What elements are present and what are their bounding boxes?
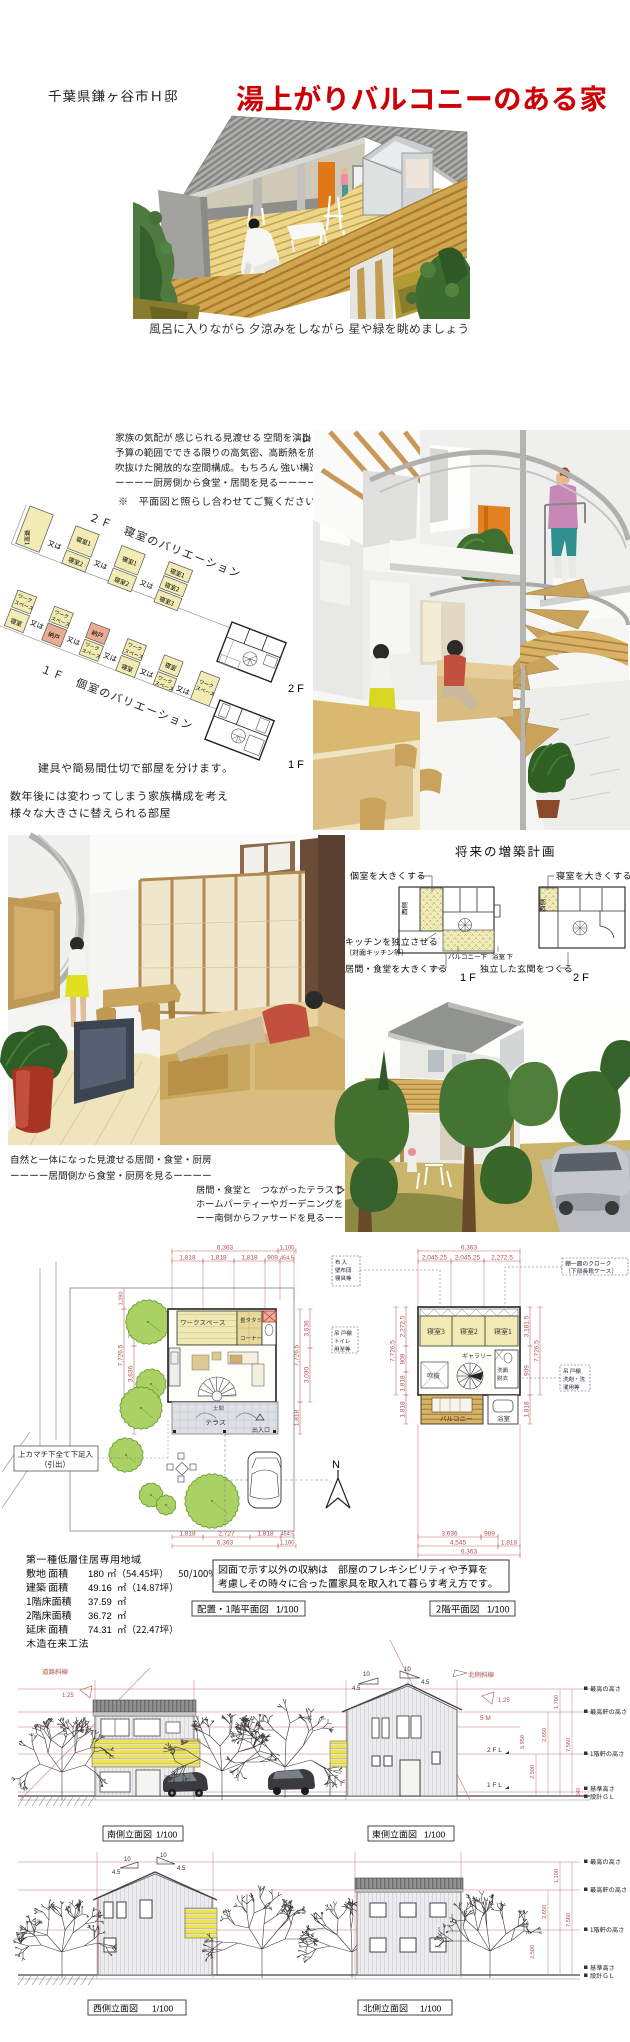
svg-text:1 F: 1 F xyxy=(288,759,304,771)
svg-text:1,818: 1,818 xyxy=(179,1255,196,1262)
svg-text:6,363: 6,363 xyxy=(461,1549,478,1556)
svg-text:49.16: 49.16 xyxy=(88,1583,112,1594)
svg-text:10: 10 xyxy=(363,1672,370,1678)
svg-text:10: 10 xyxy=(160,1853,167,1859)
svg-text:6,363: 6,363 xyxy=(461,1245,478,1252)
svg-text:454.5: 454.5 xyxy=(280,1256,294,1262)
svg-text:6,363: 6,363 xyxy=(217,1540,234,1547)
svg-text:37.59: 37.59 xyxy=(88,1597,112,1608)
svg-text:2,500: 2,500 xyxy=(530,1945,536,1959)
svg-text:2 F L: 2 F L xyxy=(487,1747,502,1754)
svg-text:36.72: 36.72 xyxy=(88,1611,112,1622)
svg-text:540: 540 xyxy=(576,1788,582,1797)
svg-text:1,100: 1,100 xyxy=(279,1541,295,1547)
svg-text:2,650: 2,650 xyxy=(542,1905,548,1919)
svg-text:1.25: 1.25 xyxy=(62,1693,74,1699)
svg-text:2,727: 2,727 xyxy=(218,1531,235,1538)
svg-text:1/100: 1/100 xyxy=(276,1605,299,1615)
svg-text:2,045.25: 2,045.25 xyxy=(422,1255,448,1262)
svg-text:1 F: 1 F xyxy=(460,972,476,984)
svg-text:74.31: 74.31 xyxy=(88,1625,112,1636)
svg-text:7,726.5: 7,726.5 xyxy=(390,1340,397,1362)
svg-text:1,818: 1,818 xyxy=(294,1409,301,1426)
svg-text:1/100: 1/100 xyxy=(156,1830,178,1840)
svg-text:5,950: 5,950 xyxy=(520,1735,526,1749)
svg-text:180: 180 xyxy=(88,1569,104,1580)
svg-text:4.5: 4.5 xyxy=(352,1686,361,1692)
svg-text:10: 10 xyxy=(404,1667,411,1673)
svg-text:1,818: 1,818 xyxy=(179,1531,196,1538)
svg-text:7,726.5: 7,726.5 xyxy=(294,1344,301,1366)
svg-text:1,818: 1,818 xyxy=(257,1531,274,1538)
svg-text:3,181.5: 3,181.5 xyxy=(524,1315,531,1337)
svg-text:909: 909 xyxy=(400,1353,407,1364)
svg-text:2,650: 2,650 xyxy=(542,1728,548,1742)
svg-text:3,636: 3,636 xyxy=(441,1531,458,1538)
svg-text:5 M: 5 M xyxy=(480,1715,491,1722)
svg-text:3,636: 3,636 xyxy=(128,1365,135,1382)
svg-text:1,100: 1,100 xyxy=(554,1869,560,1883)
svg-text:10: 10 xyxy=(124,1857,131,1863)
svg-text:1,818: 1,818 xyxy=(400,1401,407,1418)
svg-text:2 F: 2 F xyxy=(288,683,304,695)
svg-text:1/100: 1/100 xyxy=(152,2004,174,2014)
svg-text:1.25: 1.25 xyxy=(498,1698,510,1704)
svg-text:4.5: 4.5 xyxy=(177,1866,186,1872)
svg-text:N: N xyxy=(332,1459,340,1471)
svg-text:3,636: 3,636 xyxy=(304,1320,311,1337)
svg-text:1/100: 1/100 xyxy=(420,2004,442,2014)
svg-text:1 F L: 1 F L xyxy=(487,1782,502,1789)
svg-text:2,500: 2,500 xyxy=(530,1765,536,1779)
svg-text:1,818: 1,818 xyxy=(241,1255,258,1262)
svg-text:909: 909 xyxy=(524,1365,531,1376)
svg-text:7,560: 7,560 xyxy=(566,1738,572,1752)
svg-text:7,726.5: 7,726.5 xyxy=(534,1340,541,1362)
svg-text:4.5: 4.5 xyxy=(112,1870,121,1876)
svg-text:454.5: 454.5 xyxy=(281,1532,295,1538)
svg-text:2,272.5: 2,272.5 xyxy=(400,1315,407,1337)
svg-text:1,818: 1,818 xyxy=(210,1255,227,1262)
svg-text:1,818: 1,818 xyxy=(524,1401,531,1418)
svg-text:909: 909 xyxy=(267,1255,278,1262)
svg-text:3,030: 3,030 xyxy=(304,1366,311,1383)
svg-text:1/100: 1/100 xyxy=(424,1830,446,1840)
svg-text:2,272.5: 2,272.5 xyxy=(491,1255,513,1262)
svg-text:1,818: 1,818 xyxy=(400,1375,407,1392)
svg-text:989: 989 xyxy=(484,1531,495,1538)
svg-text:1,700: 1,700 xyxy=(554,1695,560,1709)
svg-text:7,560: 7,560 xyxy=(566,1913,572,1927)
svg-text:1,280: 1,280 xyxy=(119,1292,125,1306)
svg-text:1,818: 1,818 xyxy=(501,1540,518,1547)
svg-text:1,100: 1,100 xyxy=(279,1246,295,1252)
svg-text:4.5: 4.5 xyxy=(421,1680,430,1686)
svg-text:6,363: 6,363 xyxy=(217,1245,234,1252)
svg-text:4,545: 4,545 xyxy=(450,1540,467,1547)
svg-text:1/100: 1/100 xyxy=(487,1605,510,1615)
svg-text:7,726.5: 7,726.5 xyxy=(118,1344,125,1366)
svg-text:2 F: 2 F xyxy=(573,972,589,984)
svg-text:2,045.25: 2,045.25 xyxy=(455,1255,481,1262)
